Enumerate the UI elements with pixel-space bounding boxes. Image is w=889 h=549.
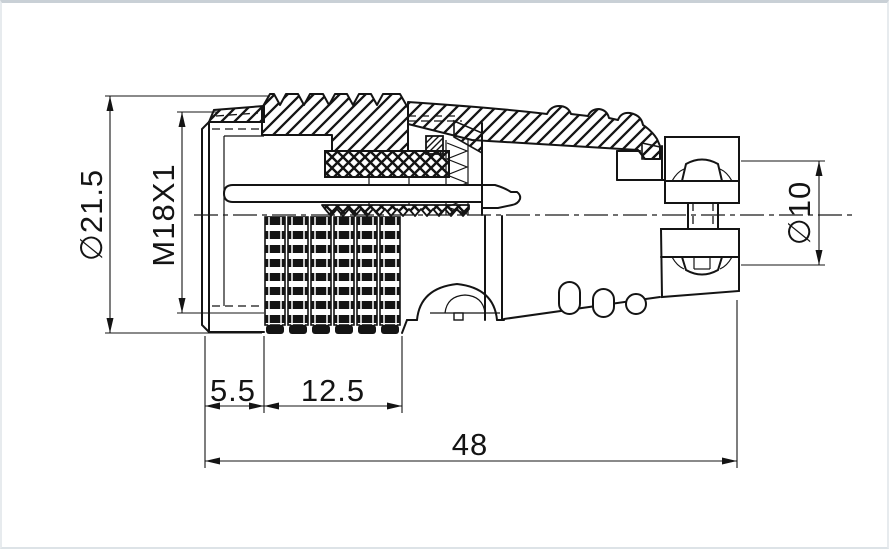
knurl-column — [380, 217, 400, 334]
dim-thread-spec-label: M18X1 — [146, 163, 181, 266]
dim-overall-length-label: 48 — [452, 427, 488, 462]
dim-cable-diameter-label: ∅10 — [782, 181, 817, 246]
technical-drawing-page: ∅21.5 M18X1 ∅10 5.5 12.5 48 — [0, 0, 889, 549]
bayonet-dome-inner — [445, 295, 485, 313]
dimension-cable-diameter: ∅10 — [741, 161, 825, 265]
cable-grip-bumps — [559, 282, 646, 317]
grip-bump — [559, 282, 580, 314]
cable-clamp — [661, 137, 739, 297]
knurl-column — [288, 217, 308, 334]
dim-outer-diameter-label: ∅21.5 — [74, 169, 109, 261]
solder-cup — [482, 185, 520, 208]
dim-front-length-label: 5.5 — [210, 373, 256, 408]
dimension-front-length: 5.5 — [205, 336, 264, 468]
grip-bump — [593, 289, 614, 317]
grip-bump — [626, 294, 646, 314]
dimension-thread-spec: M18X1 — [146, 112, 264, 313]
clamp-screw-shank — [688, 203, 718, 229]
nut-body-thread-teeth — [262, 94, 408, 151]
insulator — [322, 151, 469, 216]
body-bottom-exterior — [402, 216, 660, 333]
knurl-column — [334, 217, 354, 334]
knurl-column — [311, 217, 331, 334]
knurl-column — [357, 217, 377, 334]
dim-knurl-length-label: 12.5 — [301, 373, 365, 408]
dimension-knurl-length: 12.5 — [264, 336, 402, 413]
front-shell — [202, 122, 264, 332]
knurl-grip — [265, 217, 400, 334]
knurl-column — [265, 217, 285, 334]
connector-section-drawing: ∅21.5 M18X1 ∅10 5.5 12.5 48 — [2, 3, 889, 549]
insulator-thread-band — [322, 205, 469, 216]
